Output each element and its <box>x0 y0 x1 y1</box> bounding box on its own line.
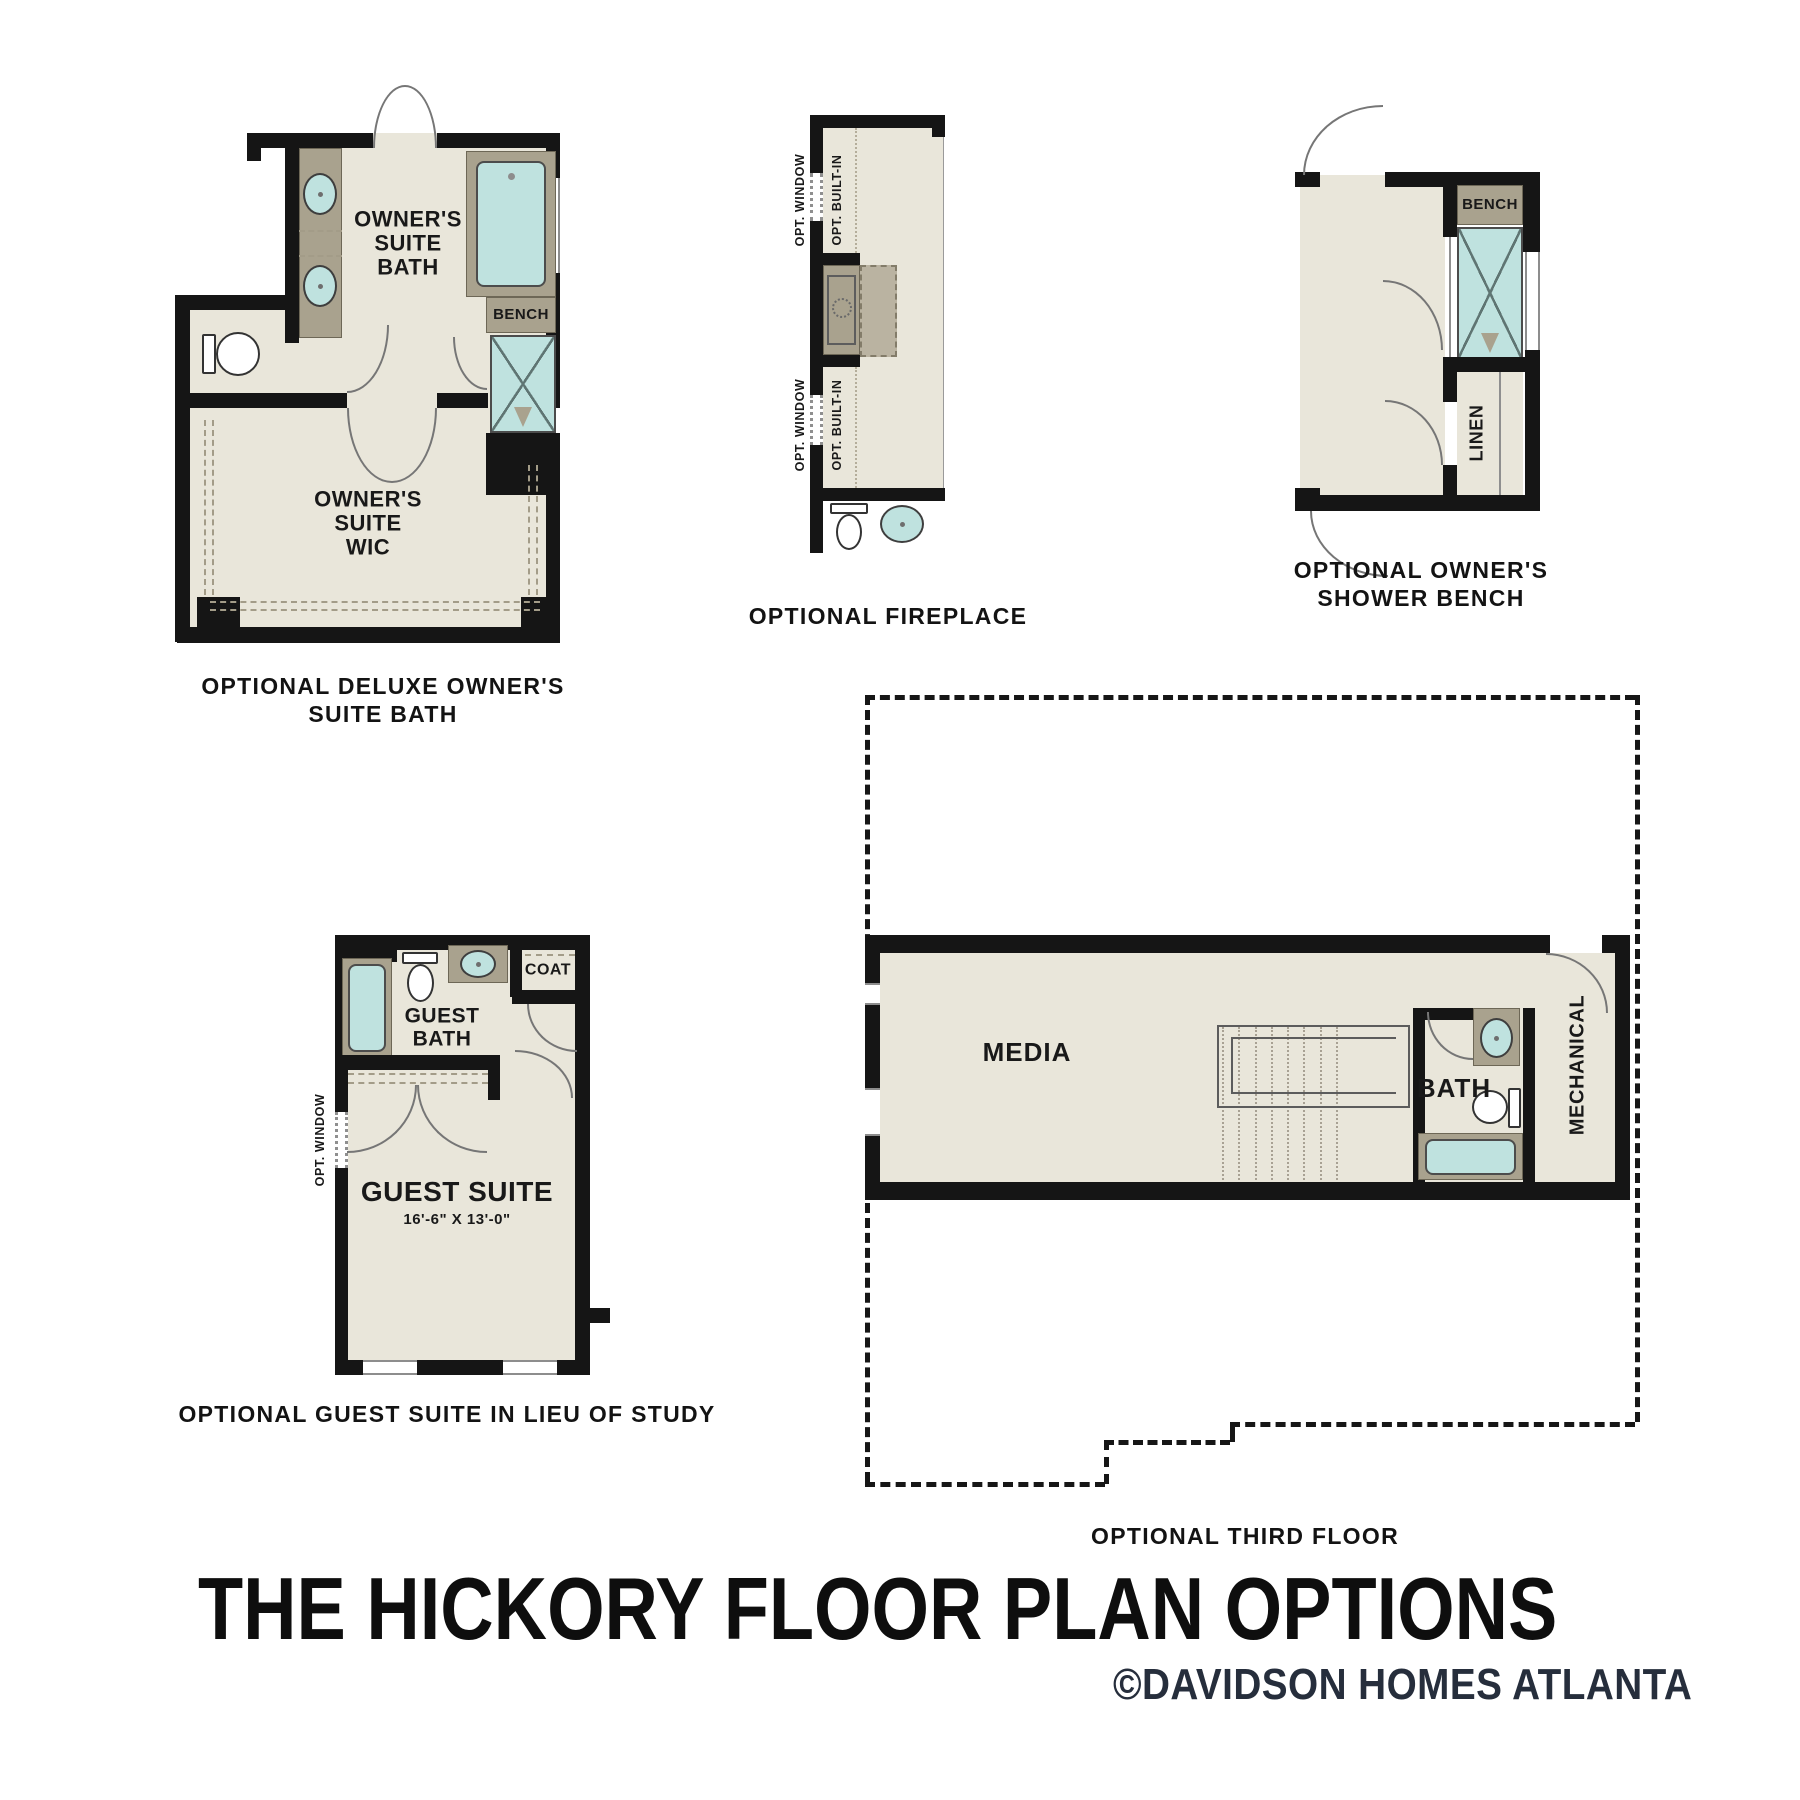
shelf-line <box>210 601 540 603</box>
wall <box>810 488 945 501</box>
wall <box>810 367 823 395</box>
label-line: WIC <box>314 535 422 559</box>
dashed-outline <box>1230 1422 1635 1427</box>
wall <box>247 133 261 161</box>
caption-shower-bench: OPTIONAL OWNER'S SHOWER BENCH <box>1294 556 1549 612</box>
toilet-tank <box>402 952 438 964</box>
fireplace-fan <box>832 298 852 318</box>
wall <box>510 935 522 997</box>
guest-suite-label: GUEST SUITE <box>361 1177 553 1207</box>
opt-built-in-label: OPT. BUILT-IN <box>830 155 844 246</box>
wall <box>437 133 553 148</box>
wall <box>488 1055 500 1100</box>
linen-label: LINEN <box>1467 405 1488 462</box>
label-line: SUITE <box>314 511 422 535</box>
bath-label: BATH <box>1417 1074 1491 1102</box>
shelf-line <box>528 465 530 595</box>
caption-line: OPTIONAL DELUXE OWNER'S <box>201 672 564 700</box>
sink <box>880 505 924 543</box>
built-in-line <box>855 367 857 488</box>
wall <box>1295 495 1540 511</box>
wall <box>335 1168 348 1375</box>
closet-dash <box>348 1073 488 1075</box>
dashed-outline <box>1104 1440 1109 1484</box>
caption-line: SHOWER BENCH <box>1294 584 1549 612</box>
floor-plan-sheet: BENCH OWNER'S SUITE BATH OWNER'S SUITE W… <box>0 0 1800 1800</box>
shelf-line <box>1499 372 1501 495</box>
copyright-text: ©DAVIDSON HOMES ATLANTA <box>1113 1660 1692 1710</box>
shelf-line <box>204 420 206 595</box>
wall <box>175 295 285 310</box>
wall <box>512 990 587 1004</box>
label-line: OWNER'S <box>354 207 462 231</box>
optional-window <box>810 173 823 221</box>
shelf-line <box>212 420 214 595</box>
wall <box>587 1308 610 1323</box>
wall <box>437 393 488 408</box>
closet-dash <box>348 1082 488 1084</box>
caption-line: SUITE BATH <box>201 700 564 728</box>
owners-suite-bath-label: OWNER'S SUITE BATH <box>354 207 462 278</box>
wall <box>932 115 945 137</box>
wall <box>1525 350 1540 500</box>
wall <box>810 115 823 173</box>
wall <box>810 355 860 367</box>
sheet-title: THE HICKORY FLOOR PLAN OPTIONS <box>198 1558 1557 1660</box>
door-opening <box>1550 935 1602 953</box>
opt-built-in-label: OPT. BUILT-IN <box>830 380 844 471</box>
window <box>503 1360 557 1375</box>
wall <box>865 1182 1630 1200</box>
toilet-bowl <box>836 514 862 550</box>
sink <box>1480 1018 1513 1058</box>
shelf-line <box>210 609 540 611</box>
guest-suite-dims: 16'-6" X 13'-0" <box>403 1212 510 1228</box>
dashed-outline <box>1104 1440 1230 1445</box>
caption-deluxe: OPTIONAL DELUXE OWNER'S SUITE BATH <box>201 672 564 728</box>
built-in-line <box>855 128 857 253</box>
tub-drain <box>508 173 515 180</box>
fireplace-hearth <box>860 265 897 357</box>
closet-rod <box>525 954 575 956</box>
label-line: SUITE <box>354 231 462 255</box>
stair-rail-inner <box>1231 1037 1396 1094</box>
door-opening <box>347 393 437 408</box>
owners-suite-wic-label: OWNER'S SUITE WIC <box>314 487 422 558</box>
opt-window-label: OPT. WINDOW <box>313 1094 327 1187</box>
wall <box>521 597 560 643</box>
wall <box>865 935 880 1182</box>
shower-drain <box>514 407 532 427</box>
bench-label: BENCH <box>1462 197 1518 213</box>
cabinet-divider <box>299 255 342 257</box>
plan-optional-fireplace: OPT. WINDOW OPT. BUILT-IN OPT. WINDOW OP… <box>780 110 960 560</box>
wall <box>1443 172 1457 237</box>
plan-guest-suite: COAT GUEST BATH GUEST SUITE 16'-6" X 13'… <box>290 930 620 1395</box>
optional-window <box>810 395 823 445</box>
wall <box>1443 357 1540 372</box>
door-arc <box>1303 105 1383 175</box>
opt-window-label: OPT. WINDOW <box>793 154 807 247</box>
plan-third-floor: MEDIA BATH MECHANICAL <box>860 690 1650 1490</box>
dashed-outline <box>865 695 1635 700</box>
window <box>1525 252 1540 350</box>
wall <box>247 133 373 148</box>
plan-owners-shower-bench: BENCH LINEN <box>1295 105 1545 585</box>
wall <box>1523 172 1540 252</box>
window <box>363 1360 417 1375</box>
label-line: BATH <box>354 255 462 279</box>
sink <box>303 265 337 307</box>
wall <box>1615 935 1630 1182</box>
bathtub <box>1425 1139 1516 1175</box>
wall <box>810 501 823 553</box>
wall <box>335 1055 490 1070</box>
bench-label: BENCH <box>493 307 549 323</box>
wall <box>810 221 823 253</box>
caption-third-floor: OPTIONAL THIRD FLOOR <box>1091 1522 1399 1550</box>
window <box>865 1088 880 1136</box>
sink <box>303 173 337 215</box>
wall <box>285 148 299 343</box>
opt-window-label: OPT. WINDOW <box>793 379 807 472</box>
caption-guest-suite: OPTIONAL GUEST SUITE IN LIEU OF STUDY <box>178 1400 715 1428</box>
shelf-line <box>536 465 538 595</box>
shower-drain <box>1481 333 1499 353</box>
sink <box>460 950 496 978</box>
toilet-tank <box>830 503 868 514</box>
caption-fireplace: OPTIONAL FIREPLACE <box>749 602 1028 630</box>
wall <box>1523 1008 1535 1183</box>
wall <box>197 597 240 643</box>
bathtub <box>348 964 386 1052</box>
wall <box>810 115 945 128</box>
guest-bath-label: GUEST BATH <box>405 1005 480 1050</box>
toilet-bowl <box>407 964 434 1002</box>
wall <box>1295 488 1320 511</box>
dashed-outline <box>865 1482 1105 1487</box>
door-arc <box>405 85 437 148</box>
shower-glass <box>1449 237 1451 357</box>
wall <box>865 935 1630 953</box>
label-line: BATH <box>405 1028 480 1051</box>
wall <box>810 253 823 367</box>
label-line: OWNER'S <box>314 487 422 511</box>
plan-deluxe-owners-suite-bath: BENCH OWNER'S SUITE BATH OWNER'S SUITE W… <box>150 85 560 665</box>
wall <box>175 393 347 408</box>
coat-label: COAT <box>525 961 571 978</box>
door-arc <box>373 85 405 148</box>
caption-line: OPTIONAL OWNER'S <box>1294 556 1549 584</box>
mechanical-label: MECHANICAL <box>1567 995 1590 1135</box>
label-line: GUEST <box>405 1005 480 1028</box>
dashed-outline <box>1635 695 1640 1422</box>
toilet-tank <box>202 334 216 374</box>
cabinet-divider <box>299 230 342 232</box>
wall <box>1443 372 1457 402</box>
wall <box>175 295 190 642</box>
toilet-bowl <box>216 332 260 376</box>
window <box>865 983 880 1005</box>
media-label: MEDIA <box>983 1038 1072 1066</box>
toilet-tank <box>1508 1088 1521 1128</box>
